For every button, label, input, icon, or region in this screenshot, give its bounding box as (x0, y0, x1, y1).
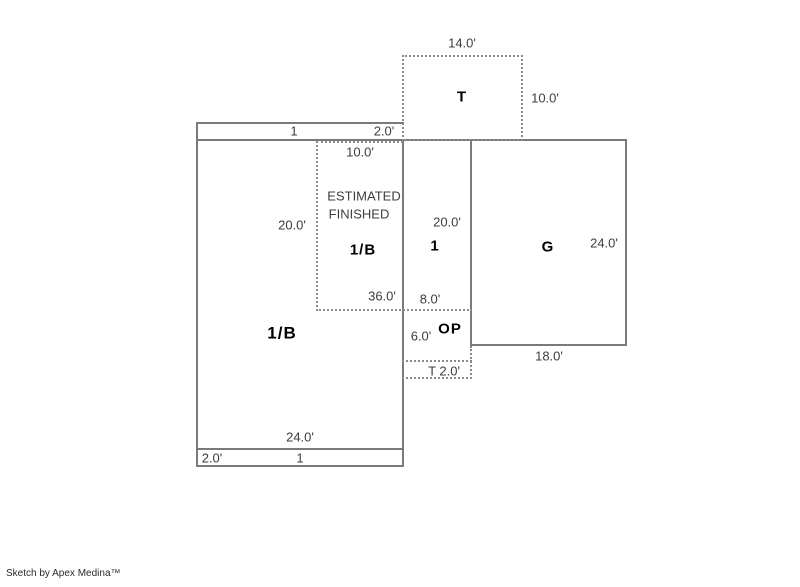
dim-t-width: 14.0' (448, 37, 476, 50)
label-bottom-strip: 1 (296, 452, 303, 465)
watermark-text: Sketch by Apex Medina™ (6, 568, 121, 579)
dim-bottom-strip-depth: 2.0' (202, 452, 223, 465)
label-t-area: T (457, 90, 467, 105)
floorplan-sketch: 14.0' 10.0' 1 2.0' 10.0' ESTIMATED FINIS… (0, 0, 800, 587)
dim-open-porch-height: 6.0' (411, 330, 432, 343)
wall-garage-bottom (470, 344, 627, 346)
dim-estimated-height: 20.0' (278, 219, 306, 232)
wall-garage-left-edge (470, 139, 472, 346)
label-top-strip: 1 (290, 125, 297, 138)
estimated-box-bottom-dashed (316, 309, 472, 311)
dim-estimated-bottom: 36.0' (368, 290, 396, 303)
note-finished: FINISHED (329, 208, 390, 221)
estimated-box-top-dashed (316, 141, 403, 143)
dim-t-height: 10.0' (531, 92, 559, 105)
estimated-box-left-dashed (316, 141, 318, 311)
label-garage-area: G (542, 240, 555, 255)
dim-region-one-height: 20.0' (433, 216, 461, 229)
note-estimated: ESTIMATED (327, 190, 400, 203)
dim-top-strip-depth: 2.0' (374, 125, 395, 138)
wall-garage-right-edge (625, 139, 627, 346)
dim-garage-height: 24.0' (590, 237, 618, 250)
t-strip-right-dashed (470, 346, 472, 379)
label-open-porch-area: OP (438, 322, 462, 337)
label-region-one-area: 1 (430, 239, 439, 254)
label-t-strip: T 2.0' (428, 365, 460, 378)
label-main-area: 1/B (267, 325, 296, 342)
dim-garage-width: 18.0' (535, 350, 563, 363)
wall-left-edge (196, 122, 198, 467)
dim-region-one-width: 8.0' (420, 293, 441, 306)
dim-estimated-width: 10.0' (346, 146, 374, 159)
open-porch-bottom-dashed (402, 360, 472, 362)
label-estimated-area: 1/B (350, 243, 376, 258)
dim-main-width: 24.0' (286, 431, 314, 444)
wall-main-right-edge (402, 139, 404, 467)
